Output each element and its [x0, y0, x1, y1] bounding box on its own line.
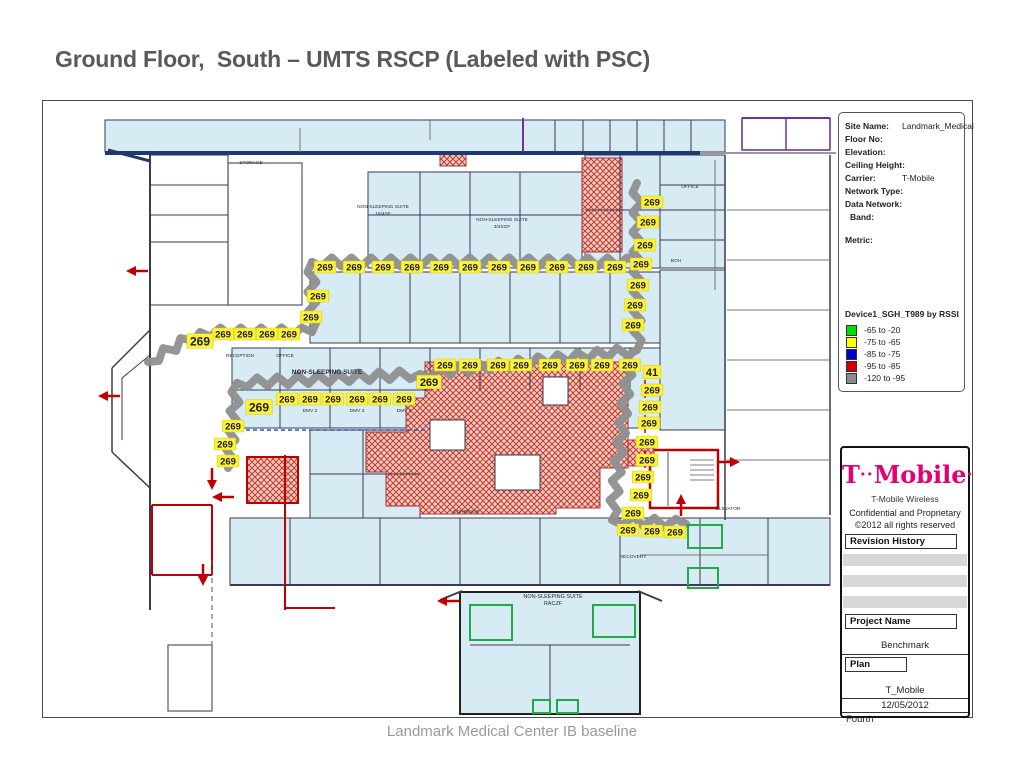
legend-item: -85 to -75 [845, 348, 960, 360]
site-info-panel: Site Name:Landmark_MedicalFloor No:Eleva… [838, 112, 965, 392]
project-name-value: Benchmark [842, 640, 968, 651]
site-info-row: Data Network: [845, 198, 959, 211]
site-info-row: Ceiling Height: [845, 159, 959, 172]
tmobile-logo: T··Mobile· [842, 460, 968, 490]
site-info-row: Floor No: [845, 133, 959, 146]
legend-swatch [846, 361, 857, 372]
site-info-row: Elevation: [845, 146, 959, 159]
legend-items: -65 to -20-75 to -65-85 to -75-95 to -85… [845, 324, 960, 384]
slide: { "slide": { "title": "Ground Floor,\u00… [0, 0, 1024, 768]
legend-item: -95 to -85 [845, 360, 960, 372]
confidential-note: Confidential and Proprietary [842, 508, 968, 518]
copyright-note: ©2012 all rights reserved [842, 520, 968, 530]
floorplan-frame [42, 100, 973, 718]
revision-row [843, 575, 967, 587]
date-value: 12/05/2012 [842, 700, 968, 711]
site-info-rows: Site Name:Landmark_MedicalFloor No:Eleva… [845, 120, 959, 247]
site-info-row: Metric: [845, 234, 959, 247]
plan-header: Plan [845, 657, 907, 672]
plan-value: T_Mobile [842, 685, 968, 696]
slide-footer: Landmark Medical Center IB baseline [0, 723, 1024, 740]
legend-item: -65 to -20 [845, 324, 960, 336]
page-title: Ground Floor, South – UMTS RSCP (Labeled… [55, 46, 650, 73]
site-info-row: Carrier:T-Mobile [845, 172, 959, 185]
revision-row [843, 554, 967, 566]
site-info-row: Network Type: [845, 185, 959, 198]
legend-item: -75 to -65 [845, 336, 960, 348]
legend-swatch [846, 373, 857, 384]
legend-swatch [846, 325, 857, 336]
project-name-header: Project Name [845, 614, 957, 629]
rssi-legend: Device1_SGH_T989 by RSSI -65 to -20-75 t… [845, 309, 960, 384]
legend-swatch [846, 337, 857, 348]
legend-swatch [846, 349, 857, 360]
divider [842, 712, 968, 713]
divider [842, 654, 968, 655]
site-info-row: Band: [845, 211, 959, 224]
divider [842, 698, 968, 699]
title-block: T··Mobile· T-Mobile Wireless Confidentia… [840, 446, 970, 718]
revision-row [843, 596, 967, 608]
revision-history-header: Revision History [845, 534, 957, 549]
legend-item: -120 to -95 [845, 372, 960, 384]
tmobile-subtitle: T-Mobile Wireless [842, 494, 968, 504]
site-info-row: Site Name:Landmark_Medical [845, 120, 959, 133]
legend-title: Device1_SGH_T989 by RSSI [845, 309, 960, 319]
